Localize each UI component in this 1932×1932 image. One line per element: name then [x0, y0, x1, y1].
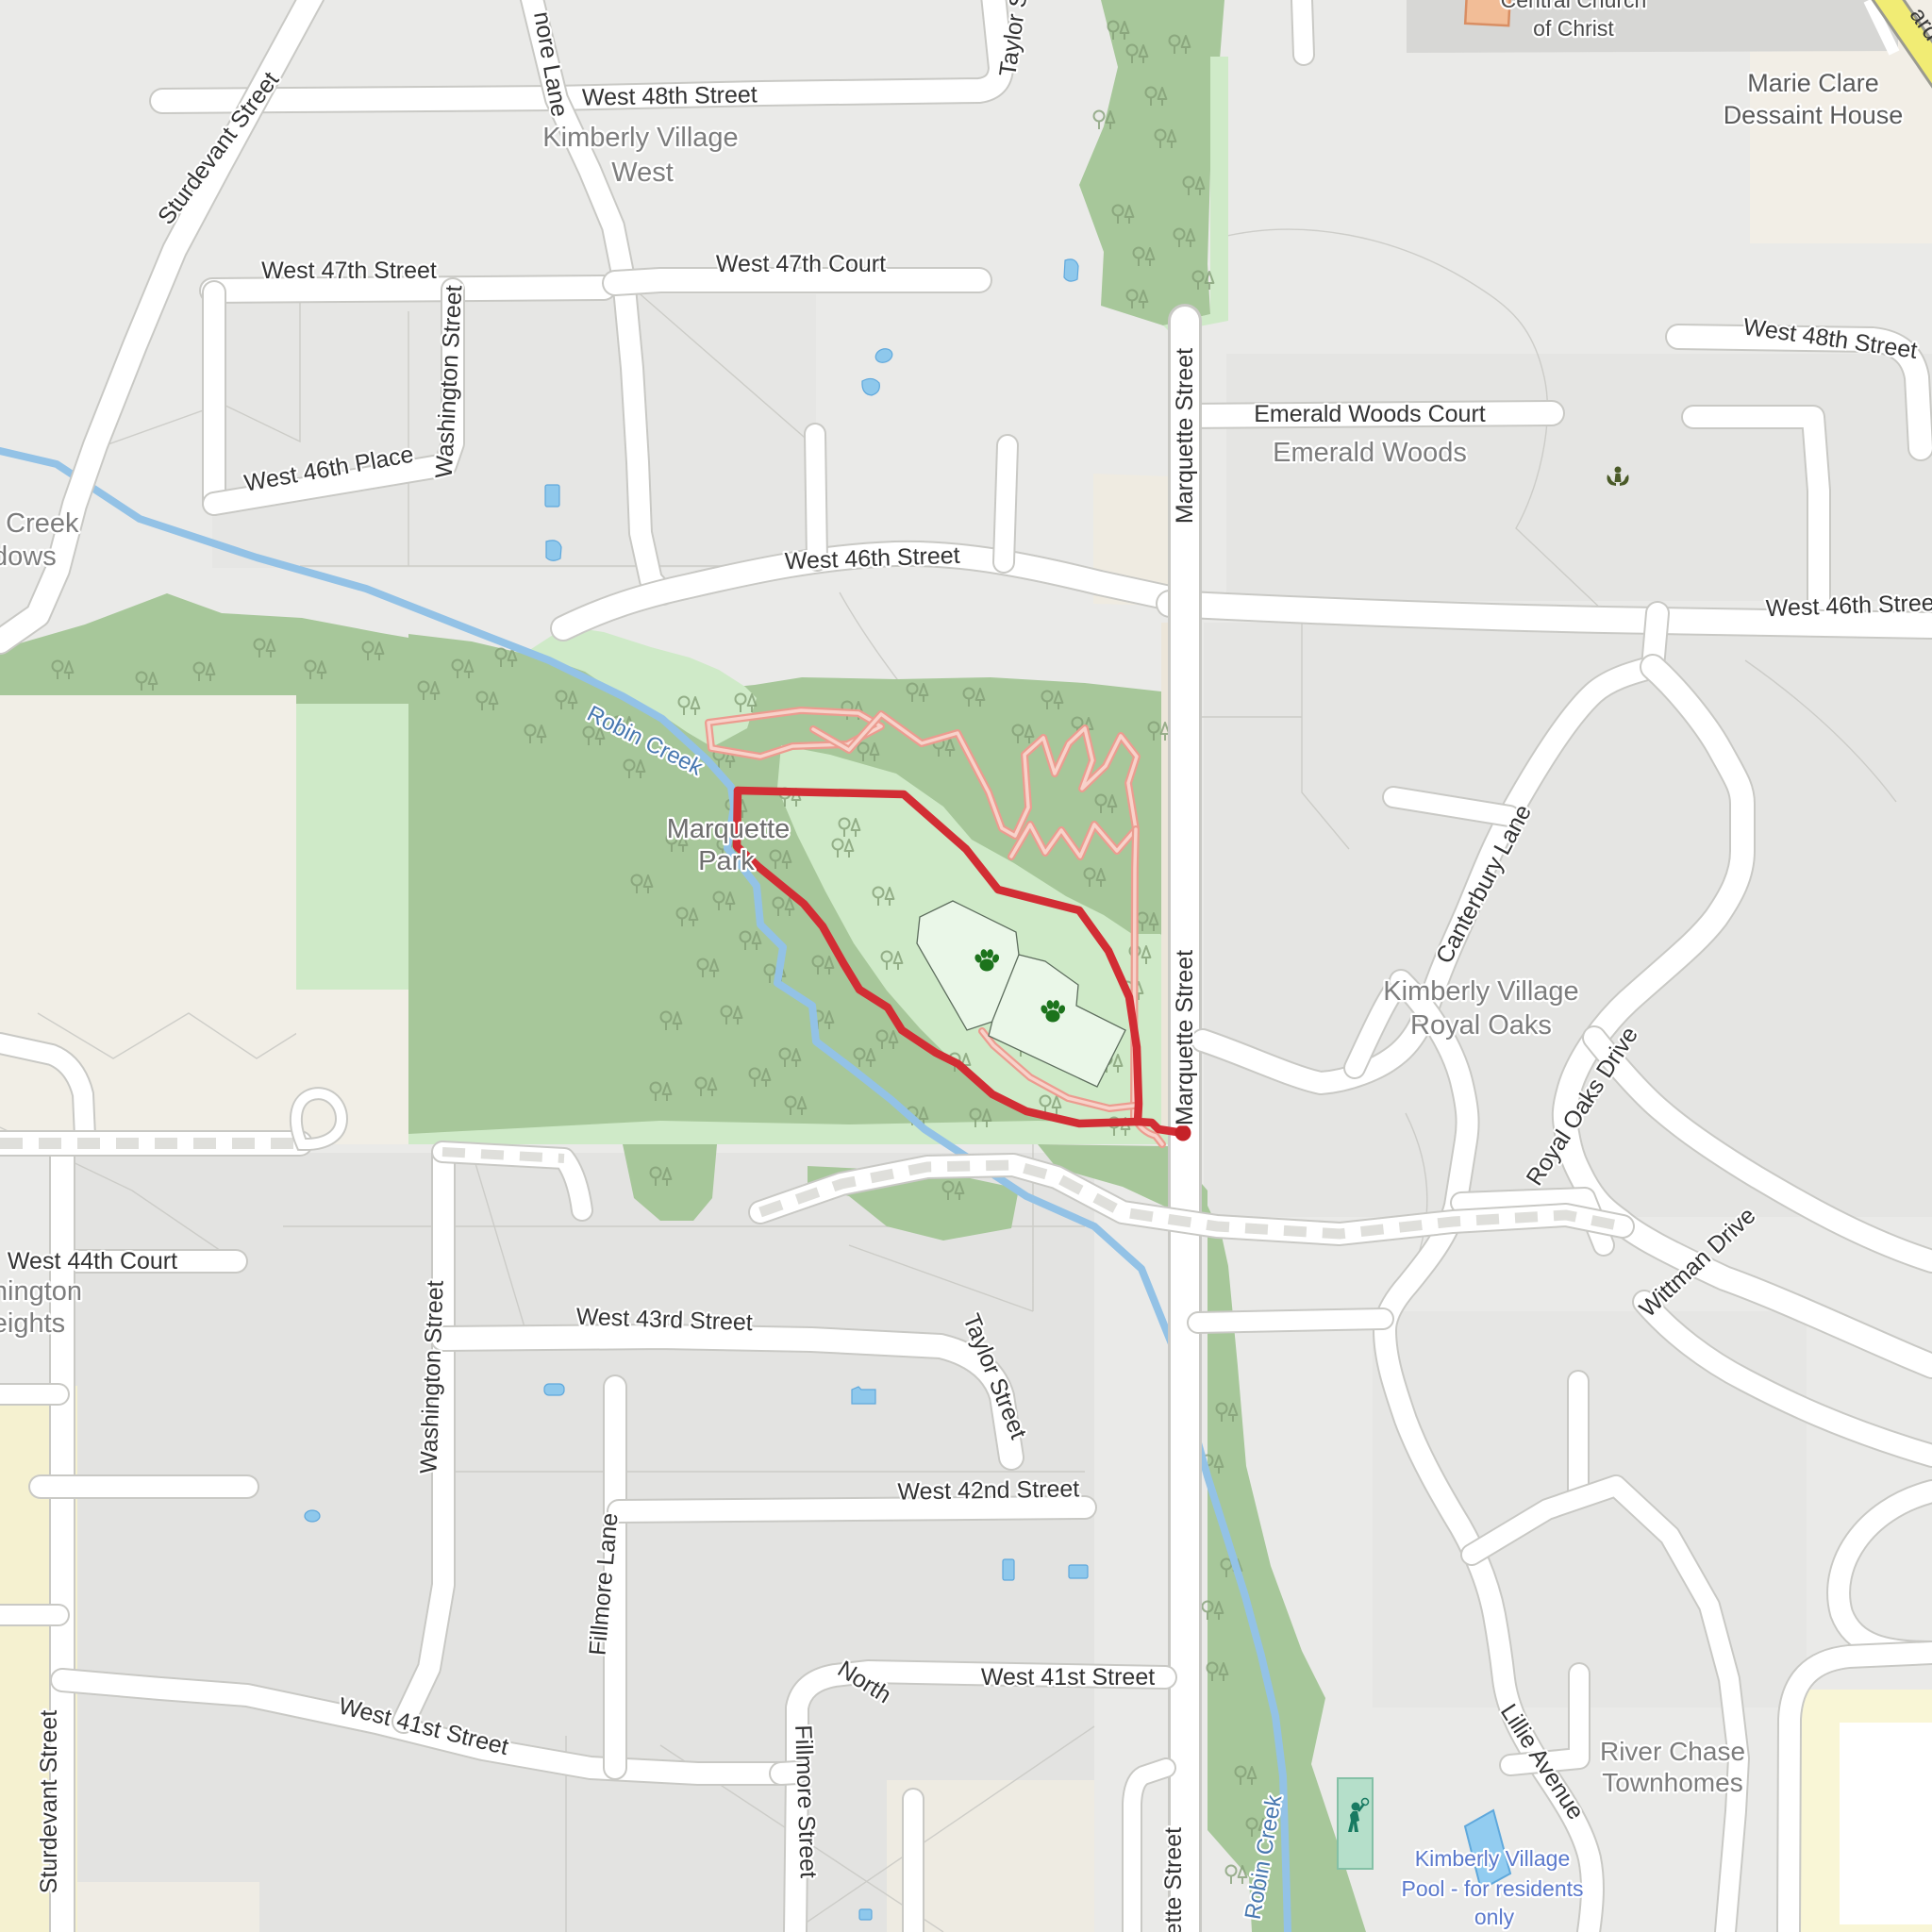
svg-text:n Creek: n Creek: [0, 508, 79, 539]
svg-text:Central Church: Central Church: [1501, 0, 1647, 12]
svg-text:Marquette: Marquette: [667, 814, 791, 844]
svg-text:Townhomes: Townhomes: [1602, 1768, 1742, 1797]
svg-text:Marquette Street: Marquette Street: [1172, 950, 1198, 1125]
svg-text:Kimberly Village: Kimberly Village: [542, 123, 738, 153]
svg-text:West 47th Court: West 47th Court: [716, 251, 886, 277]
svg-text:Fillmore Street: Fillmore Street: [790, 1724, 822, 1878]
svg-text:of Christ: of Christ: [1533, 16, 1614, 41]
svg-text:only: only: [1474, 1905, 1515, 1929]
svg-text:West: West: [611, 158, 674, 188]
svg-text:Kimberly Village: Kimberly Village: [1383, 976, 1578, 1007]
svg-text:Sturdevant Street: Sturdevant Street: [36, 1710, 62, 1894]
svg-text:West 48th Street: West 48th Street: [582, 81, 758, 110]
svg-text:Marquette Street: Marquette Street: [1160, 1827, 1187, 1932]
svg-text:Dessaint House: Dessaint House: [1724, 101, 1904, 129]
svg-text:dows: dows: [0, 541, 57, 572]
svg-text:Washington: Washington: [0, 1276, 82, 1307]
svg-text:Marie Clare: Marie Clare: [1747, 69, 1879, 97]
svg-text:Marquette Street: Marquette Street: [1172, 348, 1198, 524]
svg-text:Pool - for residents: Pool - for residents: [1401, 1876, 1583, 1901]
svg-text:Park: Park: [698, 846, 755, 876]
svg-text:River Chase: River Chase: [1600, 1737, 1745, 1766]
svg-text:Kimberly Village: Kimberly Village: [1415, 1846, 1570, 1871]
svg-text:West 42nd Street: West 42nd Street: [897, 1475, 1079, 1505]
svg-text:Emerald Woods: Emerald Woods: [1273, 438, 1467, 468]
svg-text:West 44th Court: West 44th Court: [8, 1248, 177, 1274]
svg-text:West 47th Street: West 47th Street: [261, 258, 437, 284]
svg-text:West 41st Street: West 41st Street: [981, 1664, 1155, 1690]
svg-text:Emerald Woods Court: Emerald Woods Court: [1254, 401, 1486, 427]
svg-text:Royal Oaks: Royal Oaks: [1410, 1010, 1552, 1041]
svg-text:Heights: Heights: [0, 1308, 65, 1339]
